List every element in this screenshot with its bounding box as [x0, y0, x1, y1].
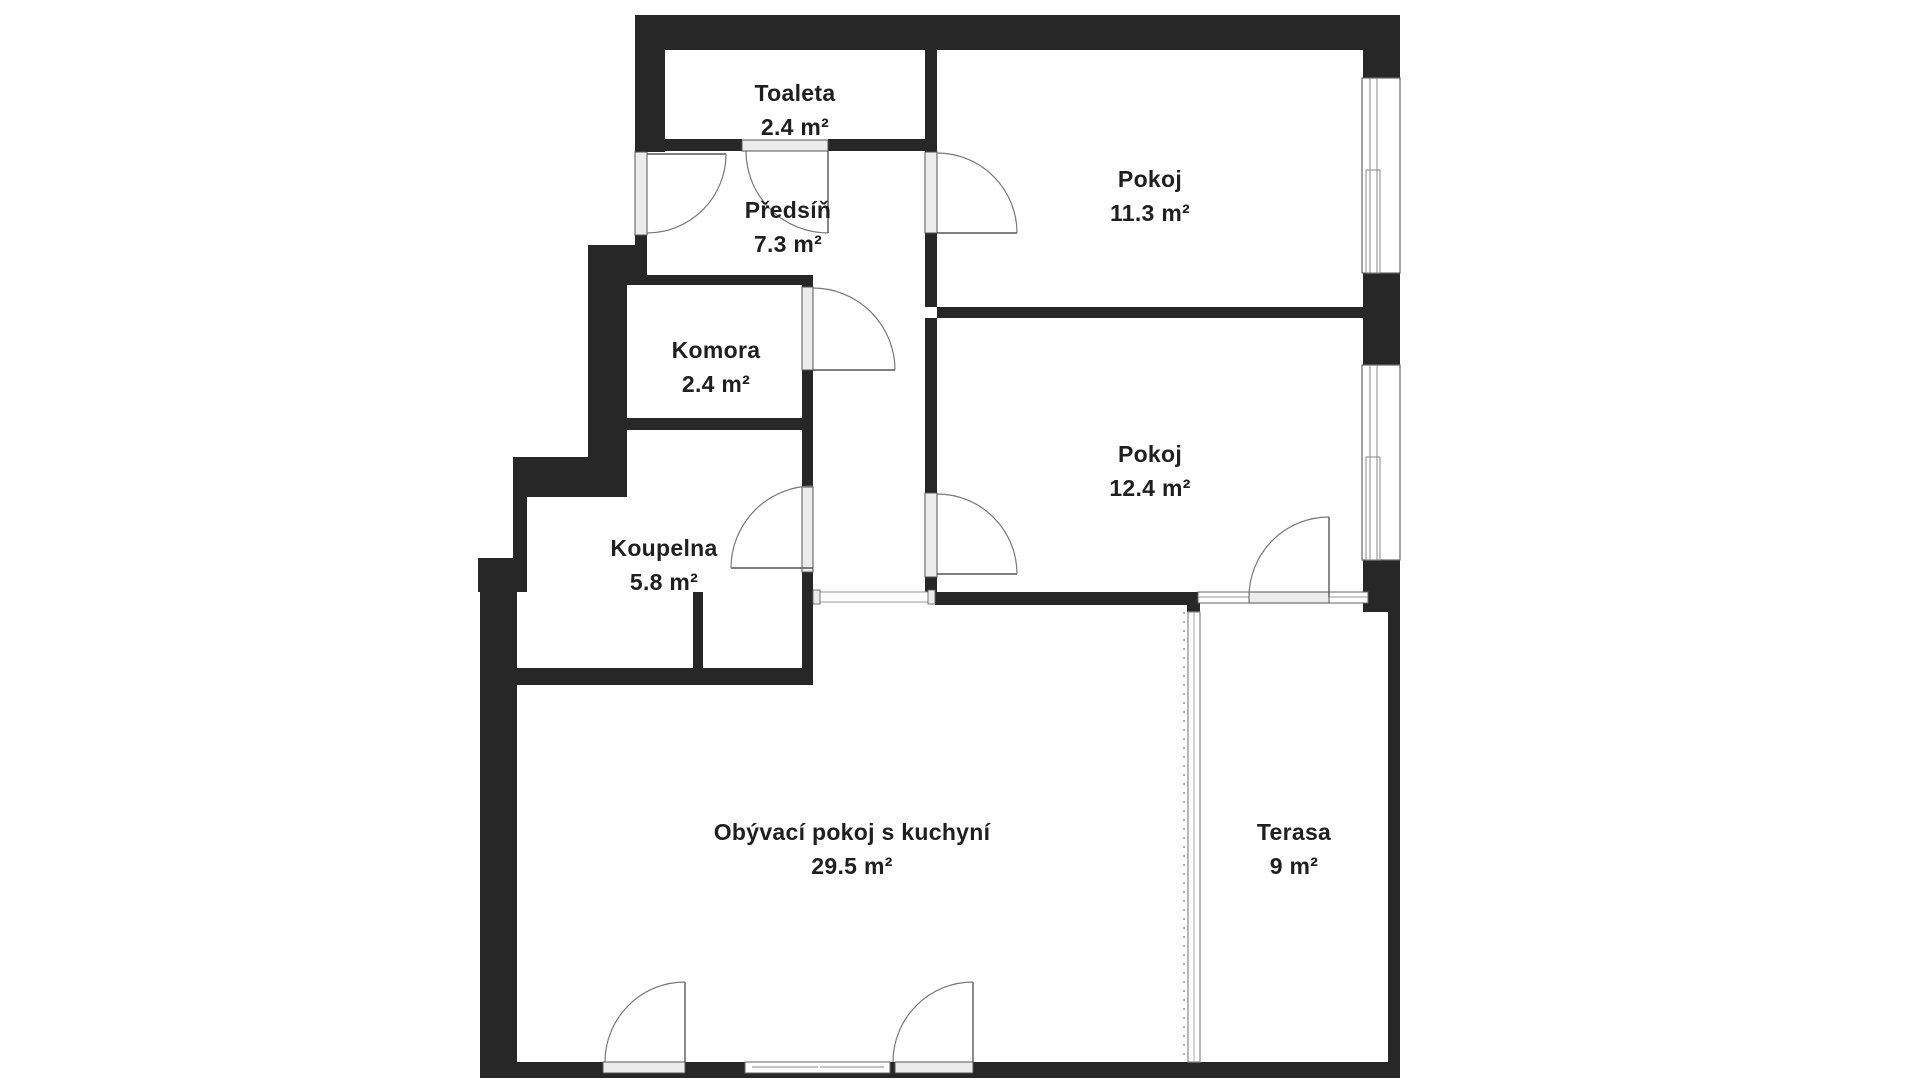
wall-koupelna-stub — [693, 592, 703, 668]
room-label-predsin: Předsíň 7.3 m² — [745, 193, 831, 261]
room-name: Pokoj — [1109, 437, 1190, 471]
wall-right-terrace — [1388, 612, 1400, 1062]
room-name: Pokoj — [1110, 162, 1190, 196]
door-terasa — [1249, 517, 1329, 603]
room-area: 9 m² — [1257, 849, 1331, 883]
room-area: 5.8 m² — [610, 565, 717, 599]
room-name: Obývací pokoj s kuchyní — [714, 815, 991, 849]
room-name: Předsíň — [745, 193, 831, 227]
wall-komora-top — [627, 275, 813, 285]
windows — [745, 78, 1400, 1073]
door-pokoj-2 — [925, 493, 1017, 577]
room-label-toaleta: Toaleta 2.4 m² — [755, 76, 836, 144]
room-area: 7.3 m² — [745, 227, 831, 261]
room-label-obyvaci: Obývací pokoj s kuchyní 29.5 m² — [714, 815, 991, 883]
window-terrace-partition — [1184, 612, 1200, 1062]
wall-corridor-2 — [925, 233, 937, 307]
door-koupelna — [731, 486, 813, 572]
wall-right-below-window — [1363, 560, 1400, 612]
room-label-koupelna: Koupelna 5.8 m² — [610, 531, 717, 599]
wall-corridor-3 — [925, 318, 937, 493]
room-name: Koupelna — [610, 531, 717, 565]
wall-komora-bottom — [588, 418, 813, 430]
room-label-pokoj-1: Pokoj 11.3 m² — [1110, 162, 1190, 230]
wall-toaleta-left — [665, 139, 742, 151]
room-name: Komora — [672, 333, 761, 367]
room-area: 12.4 m² — [1109, 471, 1190, 505]
window-pokoj-1 — [1362, 78, 1400, 273]
wall-step-2 — [513, 457, 627, 497]
wall-right-corner-top — [1363, 50, 1400, 78]
floor-plan-drawing — [0, 0, 1920, 1080]
room-label-pokoj-2: Pokoj 12.4 m² — [1109, 437, 1190, 505]
wall-step-3 — [478, 558, 527, 592]
door-living-left — [603, 982, 685, 1073]
wall-pokoj-divider — [937, 307, 1363, 318]
door-entry — [635, 152, 726, 235]
room-area: 2.4 m² — [755, 110, 836, 144]
wall-living-top-right — [935, 592, 1198, 605]
floor-plan: Toaleta 2.4 m² Předsíň 7.3 m² Pokoj 11.3… — [0, 0, 1920, 1080]
wall-left-mid — [513, 497, 527, 558]
room-label-komora: Komora 2.4 m² — [672, 333, 761, 401]
wall-corridor-1 — [925, 50, 937, 152]
door-pokoj-1 — [925, 152, 1017, 233]
opening-corridor-living — [813, 590, 935, 604]
wall-komora-right-1 — [802, 275, 813, 287]
window-pokoj-2 — [1362, 365, 1400, 560]
room-area: 11.3 m² — [1110, 196, 1190, 230]
wall-right-between-windows — [1363, 273, 1400, 365]
wall-toaleta-right — [828, 139, 925, 151]
room-label-terasa: Terasa 9 m² — [1257, 815, 1331, 883]
door-komora — [802, 287, 895, 370]
room-name: Toaleta — [755, 76, 836, 110]
room-area: 2.4 m² — [672, 367, 761, 401]
room-name: Terasa — [1257, 815, 1331, 849]
room-area: 29.5 m² — [714, 849, 991, 883]
wall-left-upper — [635, 50, 665, 152]
window-living-bottom — [745, 1062, 890, 1073]
door-living-right — [893, 982, 973, 1073]
wall-top — [635, 15, 1400, 50]
wall-left-lower — [480, 592, 517, 1078]
wall-living-top-left — [480, 668, 813, 685]
